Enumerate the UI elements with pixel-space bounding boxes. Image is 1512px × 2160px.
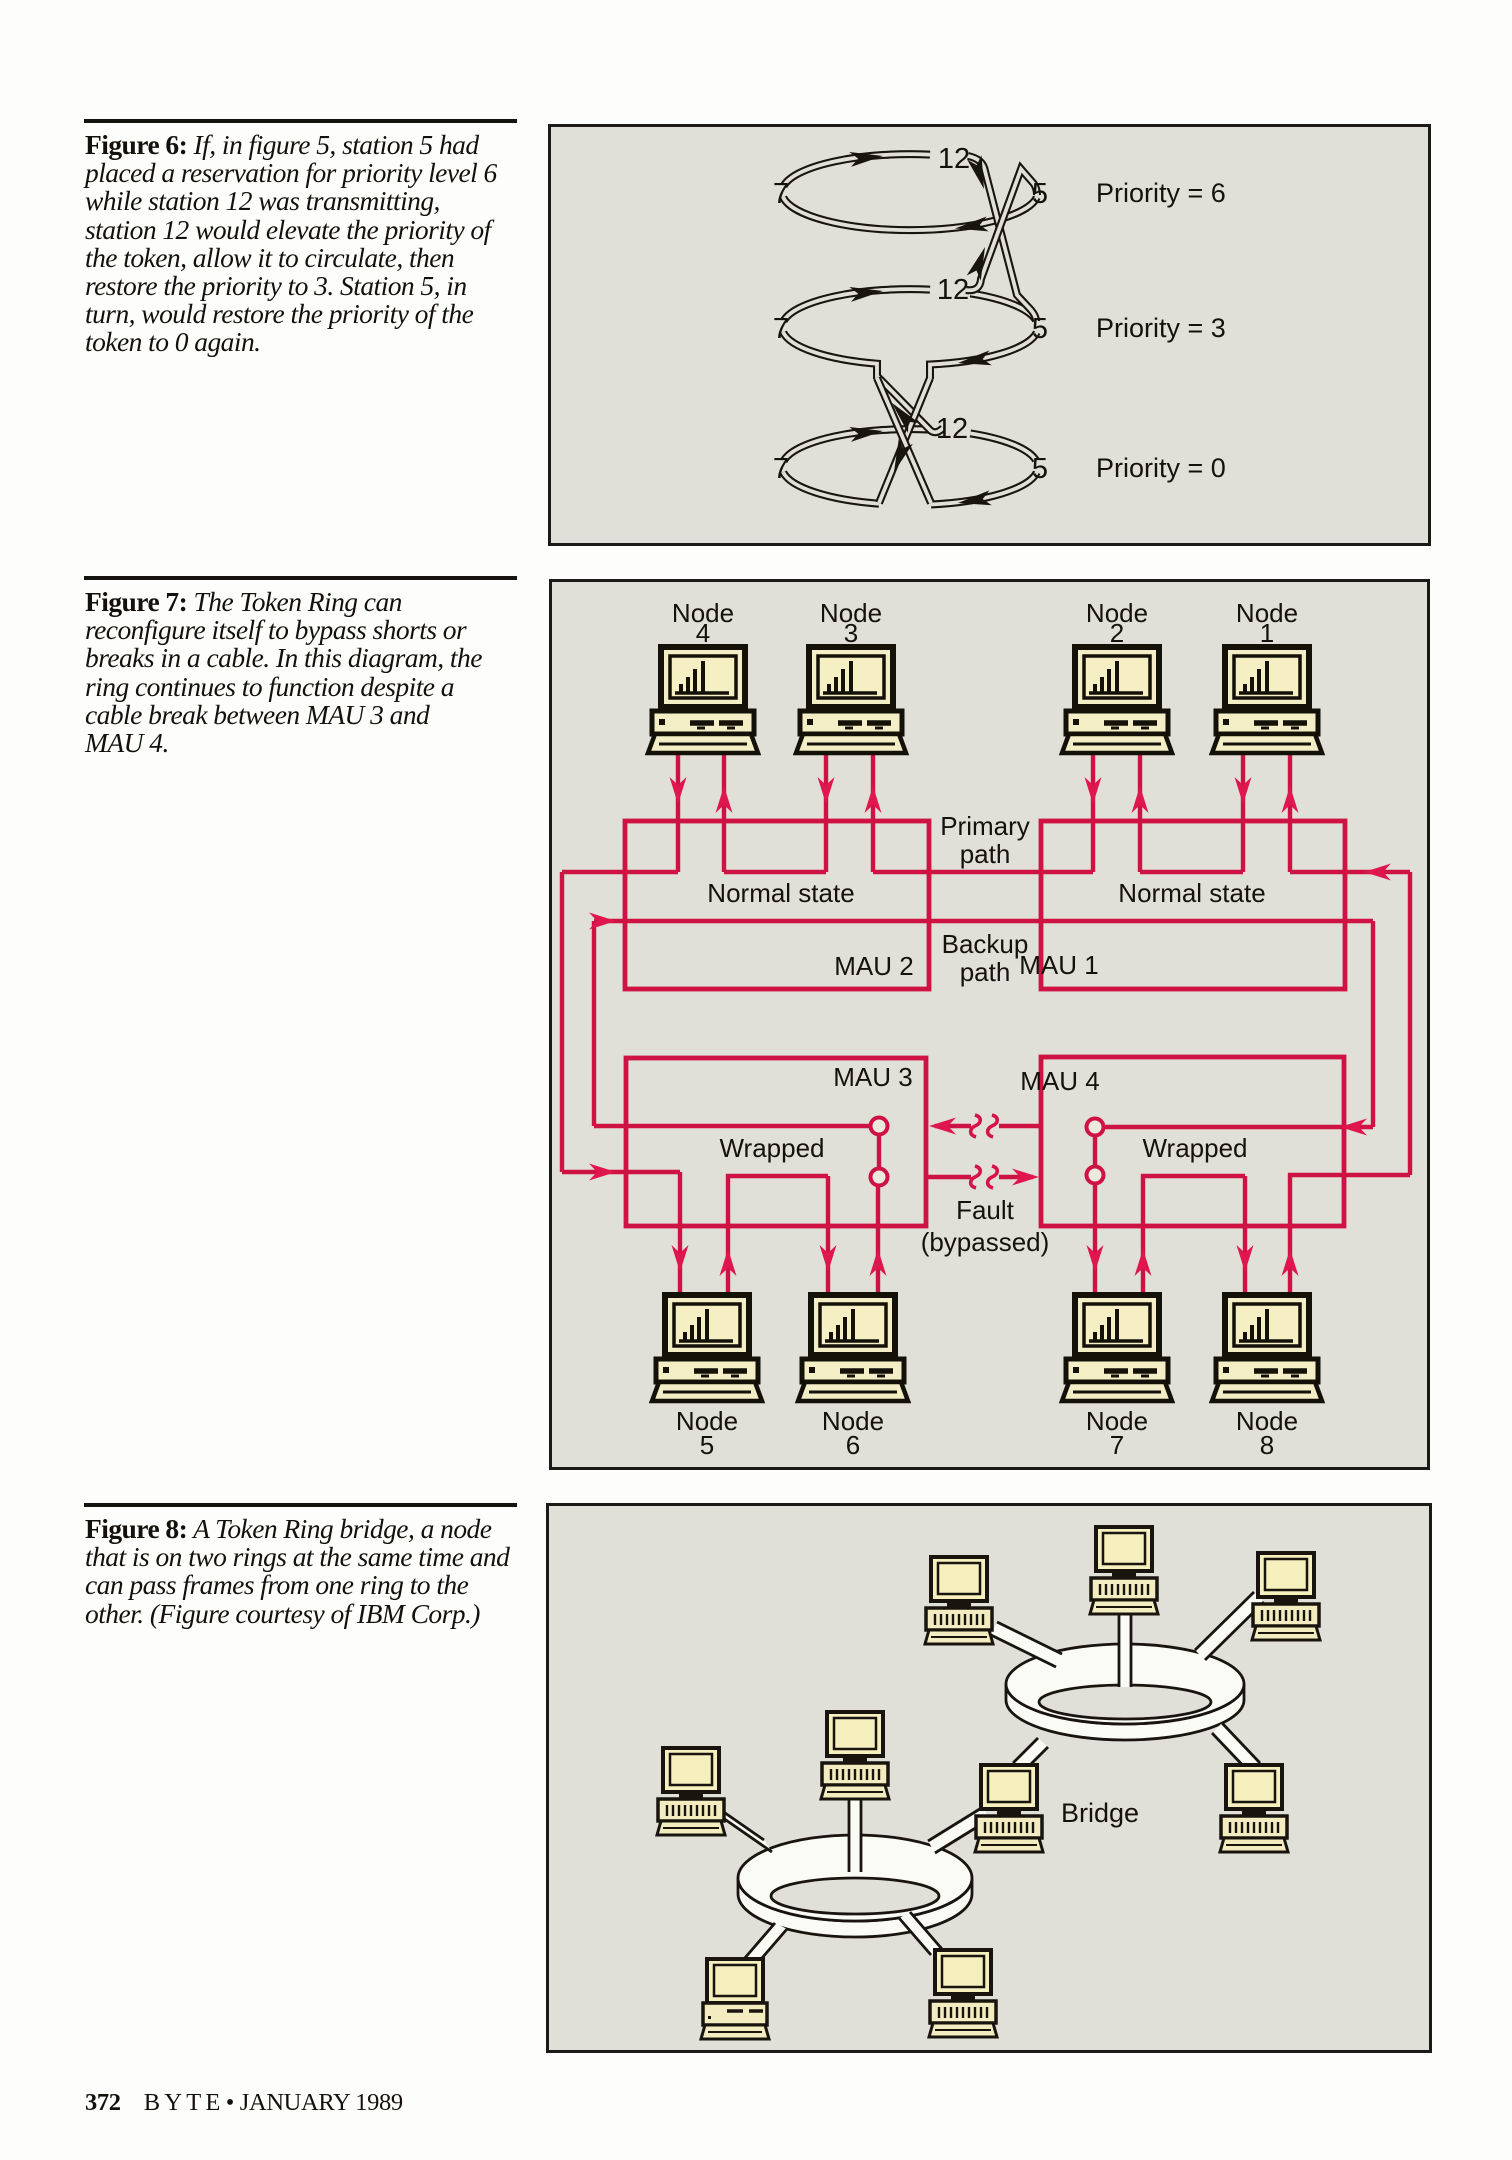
svg-text:Normal state: Normal state <box>1118 878 1265 908</box>
svg-text:Wrapped: Wrapped <box>719 1133 824 1163</box>
svg-text:MAU 3: MAU 3 <box>833 1062 912 1092</box>
svg-text:7: 7 <box>773 453 789 485</box>
svg-text:MAU 4: MAU 4 <box>1020 1066 1099 1096</box>
svg-text:Bridge: Bridge <box>1061 1798 1139 1828</box>
svg-text:Normal state: Normal state <box>707 878 854 908</box>
svg-text:Priority = 6: Priority = 6 <box>1096 178 1226 208</box>
svg-text:4: 4 <box>696 618 710 648</box>
svg-text:12: 12 <box>938 143 970 175</box>
svg-text:7: 7 <box>1110 1430 1124 1460</box>
svg-text:Primary: Primary <box>940 811 1030 841</box>
svg-text:7: 7 <box>773 178 789 210</box>
svg-text:2: 2 <box>1110 618 1124 648</box>
svg-text:1: 1 <box>1260 618 1274 648</box>
svg-text:5: 5 <box>1032 178 1048 210</box>
svg-text:Fault: Fault <box>956 1195 1015 1225</box>
svg-text:5: 5 <box>700 1430 714 1460</box>
svg-text:Priority = 3: Priority = 3 <box>1096 313 1226 343</box>
svg-text:12: 12 <box>936 413 968 445</box>
svg-text:Wrapped: Wrapped <box>1142 1133 1247 1163</box>
svg-text:6: 6 <box>846 1430 860 1460</box>
svg-text:path: path <box>960 839 1011 869</box>
svg-text:(bypassed): (bypassed) <box>921 1227 1050 1257</box>
svg-text:7: 7 <box>773 313 789 345</box>
svg-text:5: 5 <box>1032 453 1048 485</box>
svg-text:MAU 2: MAU 2 <box>834 951 913 981</box>
svg-text:Backup: Backup <box>942 929 1029 959</box>
svg-text:12: 12 <box>937 274 969 306</box>
svg-text:3: 3 <box>844 618 858 648</box>
svg-text:8: 8 <box>1260 1430 1274 1460</box>
svg-text:Priority = 0: Priority = 0 <box>1096 453 1226 483</box>
svg-text:5: 5 <box>1032 313 1048 345</box>
svg-text:path: path <box>960 957 1011 987</box>
svg-text:MAU 1: MAU 1 <box>1019 950 1098 980</box>
